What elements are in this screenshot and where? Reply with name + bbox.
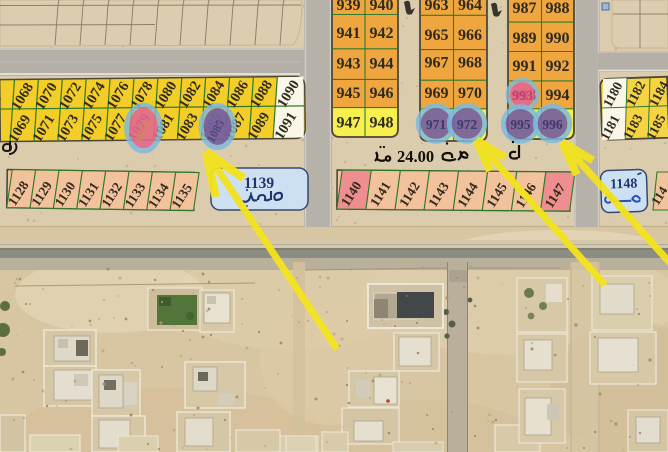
svg-text:944: 944	[370, 56, 394, 73]
svg-text:940: 940	[370, 0, 394, 14]
svg-text:970: 970	[458, 85, 482, 102]
svg-text:24.00: 24.00	[397, 147, 434, 166]
svg-text:946: 946	[370, 85, 394, 102]
svg-text:945: 945	[337, 85, 361, 102]
svg-text:996: 996	[542, 117, 563, 132]
svg-text:965: 965	[425, 27, 449, 44]
svg-text:964: 964	[458, 0, 482, 14]
svg-text:1139: 1139	[244, 175, 274, 192]
svg-text:969: 969	[425, 85, 449, 102]
svg-text:948: 948	[370, 115, 394, 132]
svg-text:943: 943	[337, 56, 361, 73]
svg-text:994: 994	[546, 87, 570, 104]
svg-text:990: 990	[546, 30, 570, 47]
svg-text:992: 992	[546, 58, 570, 75]
svg-text:942: 942	[370, 25, 394, 42]
svg-text:995: 995	[510, 117, 531, 132]
svg-text:972: 972	[457, 117, 478, 132]
svg-text:1148: 1148	[610, 177, 638, 193]
svg-text:987: 987	[513, 0, 537, 17]
svg-text:941: 941	[337, 25, 361, 42]
svg-text:947: 947	[337, 115, 361, 132]
svg-text:966: 966	[458, 27, 482, 44]
svg-text:991: 991	[513, 58, 537, 75]
svg-text:971: 971	[426, 117, 447, 132]
svg-text:988: 988	[546, 0, 570, 17]
svg-text:963: 963	[425, 0, 449, 14]
svg-text:939: 939	[337, 0, 361, 14]
svg-text:968: 968	[458, 55, 482, 72]
svg-text:967: 967	[425, 55, 449, 72]
svg-text:989: 989	[513, 30, 537, 47]
svg-text:993: 993	[512, 89, 533, 104]
